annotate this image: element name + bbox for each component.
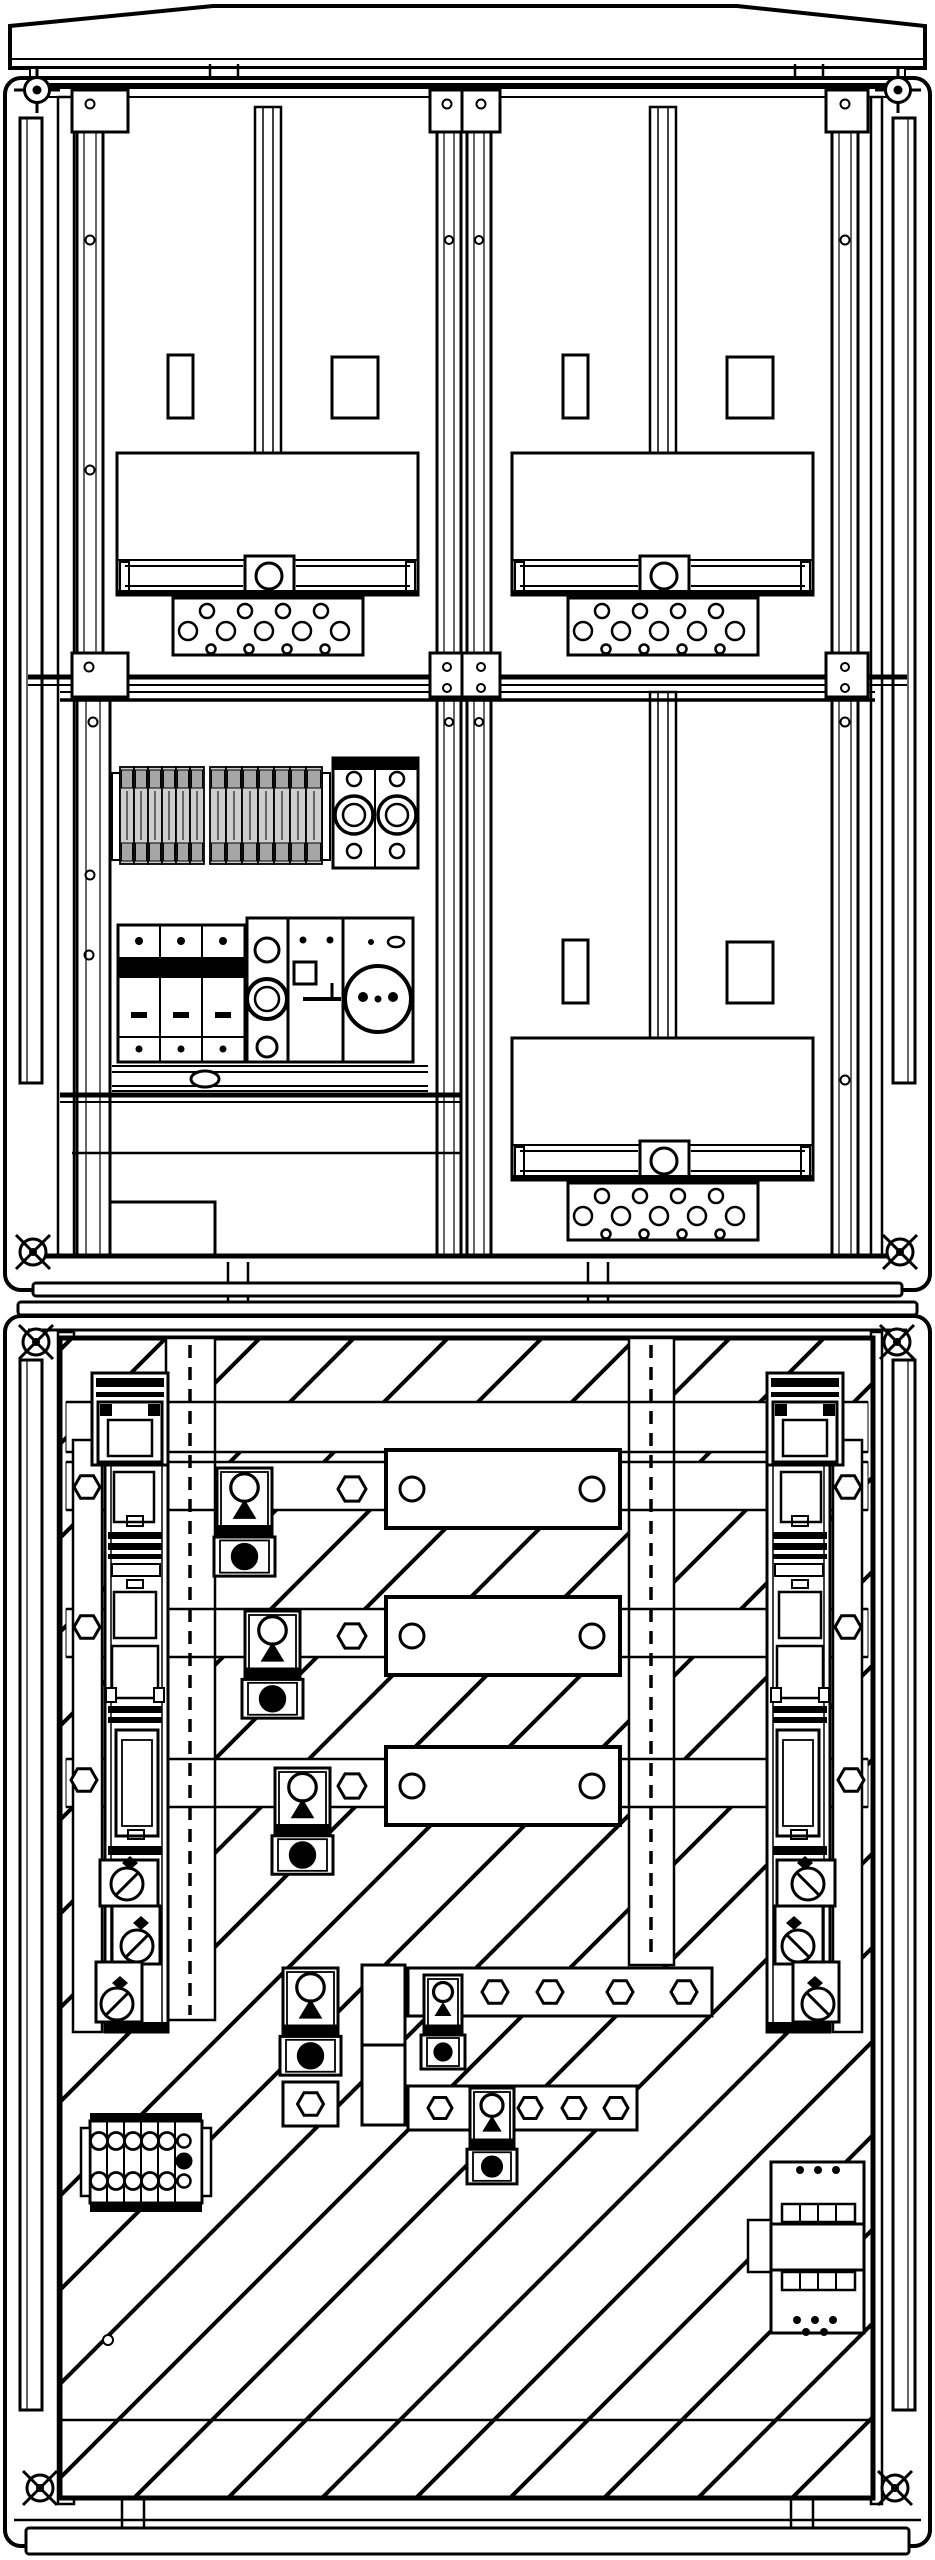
terminal-screw [108,2133,125,2150]
hex-bolt-icon [338,1624,366,1648]
terminal-screw [125,2173,142,2190]
indicator-window-icon [481,2094,503,2116]
three-pole-fuse-switch [118,925,245,1062]
terminal-screw [91,2173,108,2190]
hex-bolt-icon [482,1981,508,2004]
cable-entry-plate [110,1202,215,1256]
terminal-module-band [122,770,133,788]
hex-bolt-icon [604,2098,628,2119]
plate-hole [580,1774,604,1798]
sealing-terminal-block [333,758,418,868]
technical-drawing-page [0,0,935,2560]
terminal-module-band [122,843,133,861]
terminal-module-band [164,843,175,861]
terminal-screw [159,2173,176,2190]
hex-bolt-icon [298,2093,324,2116]
plate-hole [400,1624,424,1648]
corner-screw-icon [16,1235,50,1269]
hex-bolt-icon [537,1981,563,2004]
terminal-screw [159,2133,176,2150]
upper-cabinet [5,64,930,1290]
indicator-window-icon [259,1617,287,1645]
terminal-module-band [276,770,289,788]
indicator-window-icon [289,1773,317,1801]
control-switch [288,918,343,1062]
terminal-module-band [260,843,273,861]
terminal-module-band [244,770,257,788]
plate-hole [580,1477,604,1501]
fuse-band [470,2139,514,2148]
cap-lip [30,68,905,77]
fuse-dot-icon [231,1543,257,1569]
hex-bolt-icon [671,1981,697,2004]
corner-screw-icon [19,1325,53,1359]
hex-bolt-icon [518,2098,542,2119]
mounting-rail-right [629,1338,674,1965]
terminal-screw [108,2173,125,2190]
hex-bolt-icon [428,2098,452,2119]
hex-bolt-icon [338,1477,366,1501]
plate-hole [580,1624,604,1648]
terminal-module-band [292,770,305,788]
terminal-screw [142,2133,159,2150]
main-switch [247,918,288,1062]
indicator-window-icon [297,1974,325,2002]
nh-fuse-strip-left [71,1373,168,2032]
schuko-socket [343,918,413,1062]
fuse-dot-icon [481,2156,502,2177]
fuse-band [283,2025,338,2035]
hex-bolt-icon [607,1981,633,2004]
terminal-module-band [308,770,321,788]
terminal-module-band [164,770,175,788]
corner-screw-icon [880,1325,914,1359]
fuse-band [245,1668,300,1678]
panel-hole [103,2335,113,2345]
corner-screw-icon [878,2471,912,2505]
terminal-module-band [136,770,147,788]
terminal-module-band [212,843,225,861]
lower-cabinet [5,1316,930,2554]
indicator-window-icon [434,1983,453,2002]
terminal-screw-filled [176,2153,192,2169]
hex-bolt-icon [338,1774,366,1798]
fuse-dot-icon [259,1686,285,1712]
terminal-module-band [292,843,305,861]
terminal-module-band [178,770,189,788]
terminal-module-band [136,843,147,861]
hex-bolt-icon [562,2098,586,2119]
terminal-module-band [228,770,241,788]
terminal-module-band [150,843,161,861]
fuse-band [275,1825,330,1835]
plate-hole [400,1774,424,1798]
terminal-module-band [212,770,225,788]
plate-hole [400,1477,424,1501]
mounting-rail-left [166,1338,215,2020]
terminal-module-band [228,843,241,861]
din-terminal-row [112,767,330,864]
terminal-module-band [308,843,321,861]
fuse-band [217,1526,272,1536]
pe-terminal-block [81,2113,211,2212]
fuse-dot-icon [289,1842,315,1868]
terminal-screw [125,2133,142,2150]
nh-fuse-strip-right [767,1373,864,2032]
terminal-screw [142,2173,159,2190]
terminal-module-band [244,843,257,861]
terminal-screw [178,2135,191,2148]
cabinet-drawing [0,0,935,2560]
indicator-window-icon [231,1474,259,1502]
terminal-module-band [150,770,161,788]
fuse-band [424,2025,462,2034]
rail-slot [191,1071,219,1087]
corner-screw-icon [883,1235,917,1269]
roof-cap [10,6,925,77]
terminal-screw [91,2133,108,2150]
fuse-dot-icon [297,2043,323,2069]
terminal-module-band [260,770,273,788]
terminal-screw [178,2175,191,2188]
terminal-module-band [276,843,289,861]
terminal-module-band [178,843,189,861]
terminal-module-band [192,843,203,861]
corner-screw-icon [23,2471,57,2505]
terminal-module-band [192,770,203,788]
fuse-dot-icon [434,2043,452,2061]
